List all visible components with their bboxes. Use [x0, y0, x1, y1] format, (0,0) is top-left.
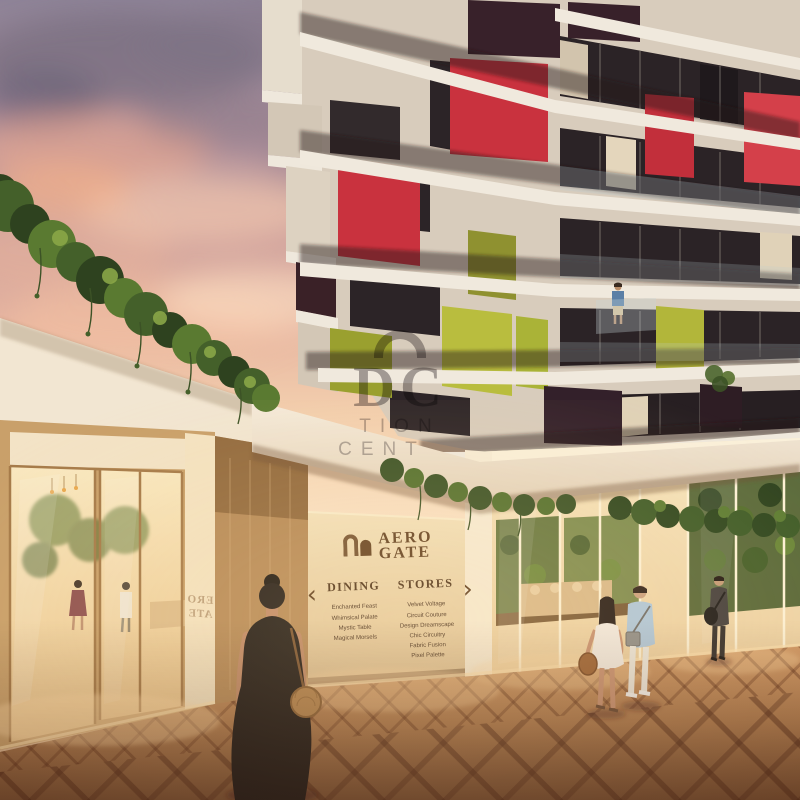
- aero-gate-sign: AERO GATE ‹ DINING Enchanted Feast Whims…: [303, 513, 477, 681]
- stores-column: STORES Velvet Voltage Circuit Couture De…: [390, 576, 463, 663]
- sign-reflection: ERO ATE: [186, 593, 214, 622]
- reflection-line-2: ATE: [186, 607, 214, 623]
- directory-item: Pixel Palette: [393, 650, 463, 663]
- brand-line-2: GATE: [379, 545, 434, 562]
- directory: ‹ DINING Enchanted Feast Whimsical Palat…: [305, 575, 476, 665]
- brand-row: AERO GATE: [304, 528, 473, 564]
- render-scene: DC TION CENT AERO GATE ‹ DINING Enchante…: [0, 0, 800, 800]
- scene-artwork: [0, 0, 800, 800]
- maroon-accent-panel: [468, 0, 560, 58]
- brand-name: AERO GATE: [378, 529, 433, 561]
- aero-gate-logo-icon: [343, 534, 372, 557]
- stores-title: STORES: [390, 576, 460, 593]
- chevron-right-icon: ›: [462, 576, 473, 601]
- logo-arch-solid: [360, 540, 372, 556]
- dining-column: DINING Enchanted Feast Whimsical Palate …: [318, 578, 390, 644]
- stores-items: Velvet Voltage Circuit Couture Design Dr…: [391, 599, 463, 663]
- logo-arch-outline: [343, 534, 359, 557]
- dining-items: Enchanted Feast Whimsical Palate Mystic …: [319, 601, 390, 644]
- dining-title: DINING: [318, 578, 388, 595]
- directory-item: Magical Morsels: [320, 632, 390, 645]
- chevron-left-icon: ‹: [306, 582, 317, 607]
